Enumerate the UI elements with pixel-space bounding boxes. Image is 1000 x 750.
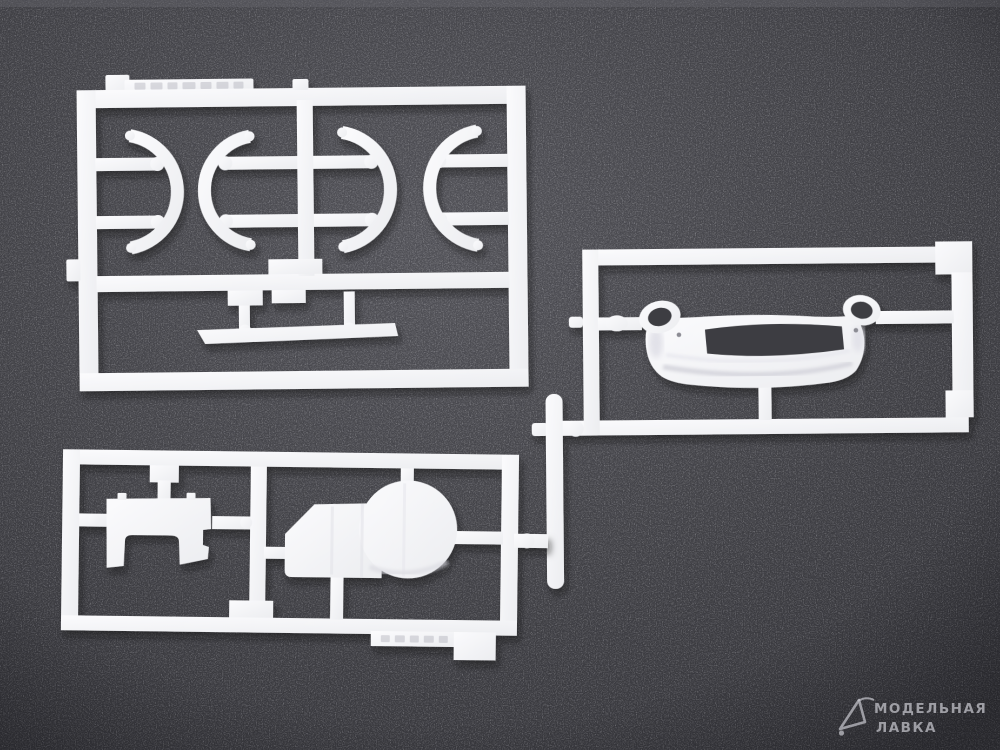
- rail-left: [582, 249, 600, 435]
- rail-top: [582, 247, 935, 266]
- watermark-line1: МОДЕЛЬНАЯ: [874, 701, 987, 717]
- cut-runner-stem: [545, 394, 564, 589]
- corner-tab: [935, 241, 972, 274]
- divider-foot: [229, 600, 273, 618]
- grille-opening: [705, 323, 844, 356]
- divider-center: [297, 100, 315, 276]
- rail-left-outer-nub: [66, 259, 80, 281]
- rail-left-outer-nub: [569, 317, 583, 328]
- gate-bump: [568, 421, 584, 437]
- rail-right: [951, 272, 973, 403]
- molded-dot-left: [677, 332, 682, 337]
- rail-right-step: [945, 390, 973, 417]
- part-connector-right: [876, 310, 954, 324]
- bottom-step: [454, 632, 496, 661]
- watermark-line2: ЛАВКА: [876, 720, 937, 736]
- divider-foot: [268, 259, 322, 275]
- rail-right: [507, 86, 529, 383]
- divider-top-nub: [292, 79, 308, 90]
- rail-left: [61, 449, 80, 630]
- gate-stub-part: [272, 290, 306, 303]
- photo-canvas: МОДЕЛЬНАЯ ЛАВКА: [0, 0, 1000, 750]
- molded-dot-right: [854, 328, 859, 333]
- rail-left: [77, 90, 99, 391]
- embossed-lettering: [134, 82, 243, 90]
- photo-of-model-kit-sprues: МОДЕЛЬНАЯ ЛАВКА: [0, 0, 1000, 750]
- cut-stub-left: [532, 423, 548, 436]
- divider-center: [249, 467, 267, 618]
